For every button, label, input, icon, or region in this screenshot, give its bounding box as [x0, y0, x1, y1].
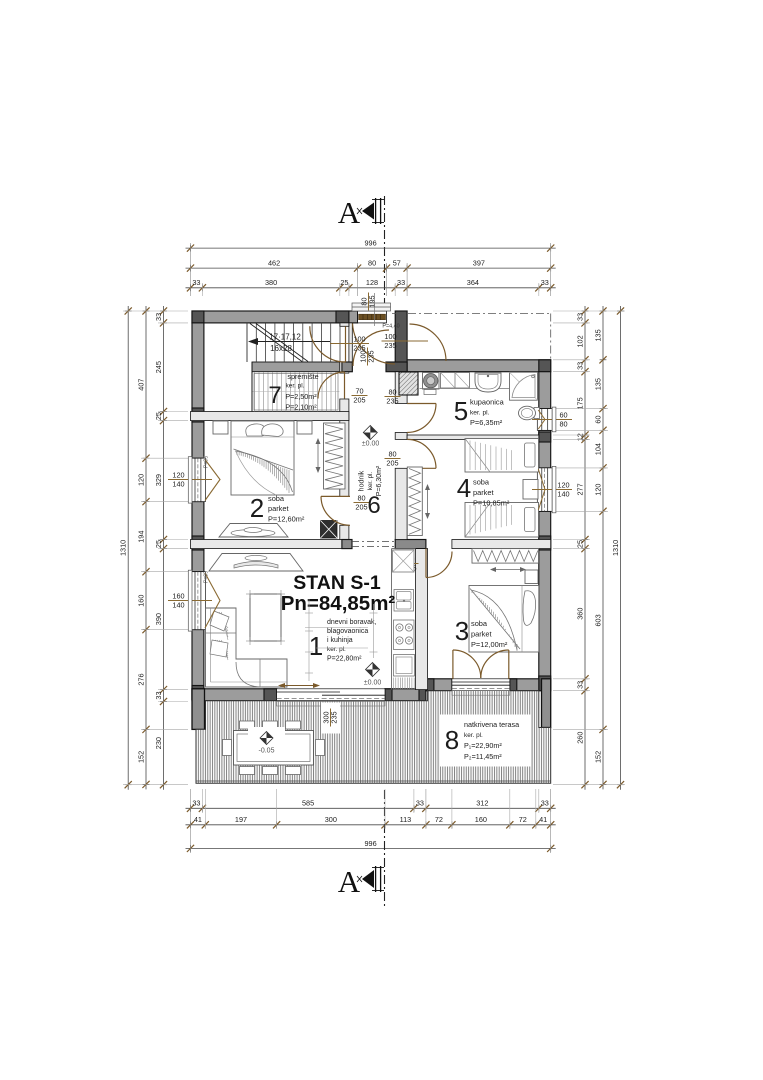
svg-text:996: 996: [365, 239, 377, 248]
svg-text:P=2,10m²: P=2,10m²: [285, 403, 317, 412]
svg-text:ker. pl.: ker. pl.: [286, 383, 305, 390]
svg-text:135: 135: [593, 329, 602, 341]
svg-text:25: 25: [154, 540, 163, 548]
svg-text:1310: 1310: [611, 540, 620, 556]
svg-text:5: 5: [454, 396, 468, 426]
svg-text:140: 140: [172, 601, 184, 610]
svg-text:P=4,40: P=4,40: [382, 324, 399, 330]
svg-text:72: 72: [435, 815, 443, 824]
svg-text:120: 120: [136, 474, 145, 486]
svg-text:±0.00: ±0.00: [362, 441, 380, 448]
svg-text:80: 80: [559, 420, 567, 429]
svg-text:120: 120: [172, 471, 184, 480]
svg-text:P=95: P=95: [204, 571, 210, 583]
svg-text:235: 235: [384, 341, 396, 350]
svg-text:120: 120: [557, 481, 569, 490]
svg-text:3: 3: [455, 616, 469, 646]
svg-text:140: 140: [172, 480, 184, 489]
svg-text:dnevni boravak,: dnevni boravak,: [327, 619, 376, 626]
svg-text:P=12,60m²: P=12,60m²: [268, 515, 305, 524]
svg-text:P=2,50m²: P=2,50m²: [285, 392, 317, 401]
svg-text:spremište: spremište: [287, 372, 318, 381]
svg-text:soba: soba: [473, 478, 490, 487]
svg-text:7: 7: [268, 382, 281, 409]
svg-text:41: 41: [539, 815, 547, 824]
svg-text:P=6,30m²: P=6,30m²: [376, 465, 383, 496]
svg-text:312: 312: [476, 799, 488, 808]
svg-text:33: 33: [416, 799, 424, 808]
svg-text:natkrivena terasa: natkrivena terasa: [464, 720, 519, 729]
svg-text:16x28: 16x28: [270, 344, 292, 353]
svg-text:parket: parket: [473, 488, 494, 497]
svg-text:parket: parket: [268, 504, 289, 513]
svg-text:soba: soba: [471, 619, 488, 628]
svg-text:kupaonica: kupaonica: [470, 398, 505, 407]
svg-text:235: 235: [330, 711, 339, 723]
svg-text:205: 205: [386, 459, 398, 468]
svg-text:25: 25: [575, 540, 584, 548]
svg-text:P=6,35m²: P=6,35m²: [470, 418, 503, 427]
svg-text:17·17,12: 17·17,12: [269, 333, 301, 342]
svg-text:1310: 1310: [119, 540, 128, 556]
svg-text:P=10,85m²: P=10,85m²: [473, 499, 510, 508]
svg-text:70: 70: [355, 387, 363, 396]
svg-text:194: 194: [136, 531, 145, 543]
svg-text:8: 8: [445, 725, 459, 755]
svg-text:hodnik: hodnik: [359, 470, 366, 491]
svg-text:33: 33: [192, 278, 200, 287]
svg-text:STAN S-1: STAN S-1: [293, 572, 381, 594]
svg-text:57: 57: [393, 259, 401, 268]
svg-text:152: 152: [593, 751, 602, 763]
svg-text:276: 276: [136, 673, 145, 685]
svg-text:996: 996: [365, 839, 377, 848]
svg-text:2: 2: [250, 493, 264, 523]
svg-text:ker. pl.: ker. pl.: [470, 410, 490, 417]
svg-text:ker. pl.: ker. pl.: [367, 472, 374, 491]
svg-text:235: 235: [367, 350, 376, 362]
svg-text:329: 329: [154, 474, 163, 486]
svg-text:1: 1: [309, 631, 323, 661]
svg-text:152: 152: [136, 751, 145, 763]
svg-text:260: 260: [575, 732, 584, 744]
svg-text:603: 603: [593, 614, 602, 626]
svg-text:230: 230: [154, 737, 163, 749]
svg-text:102: 102: [575, 335, 584, 347]
svg-text:P₂=11,45m²: P₂=11,45m²: [464, 752, 502, 761]
svg-text:33: 33: [541, 278, 549, 287]
svg-text:25: 25: [340, 278, 348, 287]
svg-text:462: 462: [268, 259, 280, 268]
svg-text:390: 390: [154, 613, 163, 625]
svg-text:585: 585: [302, 799, 314, 808]
svg-text:397: 397: [473, 259, 485, 268]
svg-text:parket: parket: [471, 630, 492, 639]
svg-text:ker. pl.: ker. pl.: [327, 646, 346, 653]
svg-text:blagovaonica: blagovaonica: [327, 628, 368, 635]
svg-text:P₁=22,90m²: P₁=22,90m²: [464, 741, 502, 750]
svg-text:P=95: P=95: [204, 456, 210, 468]
svg-text:113: 113: [400, 815, 412, 824]
svg-text:245: 245: [154, 361, 163, 373]
svg-text:33: 33: [192, 799, 200, 808]
svg-text:205: 205: [353, 396, 365, 405]
svg-text:72: 72: [519, 815, 527, 824]
svg-text:135: 135: [593, 378, 602, 390]
svg-text:60: 60: [593, 415, 602, 423]
svg-text:4: 4: [457, 473, 471, 503]
svg-text:100: 100: [353, 335, 365, 344]
svg-text:i kuhinja: i kuhinja: [327, 637, 353, 644]
svg-text:33: 33: [397, 278, 405, 287]
svg-text:P=22,80m²: P=22,80m²: [327, 656, 362, 663]
svg-text:33: 33: [575, 681, 584, 689]
svg-text:235: 235: [386, 397, 398, 406]
svg-text:25: 25: [154, 412, 163, 420]
svg-text:33: 33: [575, 313, 584, 321]
svg-text:ker. pl.: ker. pl.: [464, 732, 483, 739]
svg-text:80: 80: [388, 388, 396, 397]
svg-text:P=12,00m²: P=12,00m²: [471, 640, 508, 649]
svg-text:A: A: [338, 195, 361, 230]
svg-text:33: 33: [154, 313, 163, 321]
svg-text:128: 128: [366, 278, 378, 287]
svg-text:277: 277: [575, 483, 584, 495]
svg-text:360: 360: [575, 608, 584, 620]
svg-text:±0.00: ±0.00: [364, 680, 382, 687]
svg-text:80: 80: [388, 450, 396, 459]
svg-text:205: 205: [355, 503, 367, 512]
svg-text:12: 12: [575, 433, 584, 441]
svg-text:41: 41: [194, 815, 202, 824]
svg-text:160: 160: [136, 595, 145, 607]
svg-text:60: 60: [559, 411, 567, 420]
svg-text:33: 33: [154, 691, 163, 699]
svg-text:160: 160: [172, 592, 184, 601]
svg-text:300: 300: [325, 815, 337, 824]
svg-text:195: 195: [368, 295, 377, 307]
svg-text:33: 33: [541, 799, 549, 808]
svg-text:80: 80: [357, 494, 365, 503]
svg-text:100: 100: [384, 332, 396, 341]
svg-text:104: 104: [593, 443, 602, 455]
svg-text:160: 160: [475, 815, 487, 824]
svg-text:380: 380: [265, 278, 277, 287]
svg-text:Pn=84,85m²: Pn=84,85m²: [281, 592, 396, 615]
svg-text:140: 140: [557, 490, 569, 499]
svg-text:197: 197: [235, 815, 247, 824]
svg-text:soba: soba: [268, 494, 285, 503]
svg-text:407: 407: [136, 379, 145, 391]
svg-text:-0.05: -0.05: [259, 748, 275, 755]
svg-text:120: 120: [593, 484, 602, 496]
svg-text:175: 175: [575, 397, 584, 409]
svg-text:80: 80: [368, 259, 376, 268]
svg-text:364: 364: [467, 278, 479, 287]
svg-text:33: 33: [575, 362, 584, 370]
